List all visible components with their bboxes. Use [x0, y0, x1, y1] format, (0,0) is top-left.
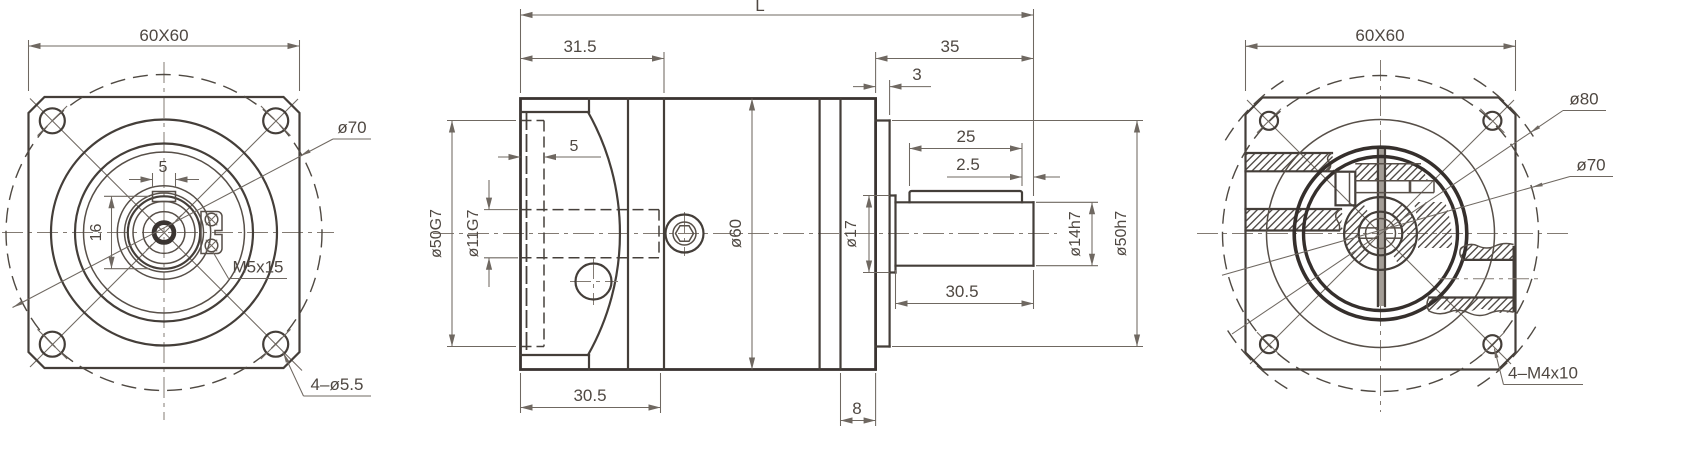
svg-text:ø14h7: ø14h7 — [1067, 211, 1084, 256]
svg-text:M5x15: M5x15 — [232, 258, 283, 277]
svg-text:L: L — [755, 0, 764, 15]
svg-text:35: 35 — [941, 37, 960, 56]
svg-text:2.5: 2.5 — [956, 155, 980, 174]
svg-text:30.5: 30.5 — [945, 282, 978, 301]
svg-text:3: 3 — [912, 65, 921, 84]
svg-text:4–M4x10: 4–M4x10 — [1508, 364, 1578, 383]
svg-text:60X60: 60X60 — [1355, 26, 1404, 45]
svg-text:ø70: ø70 — [337, 118, 366, 137]
svg-text:ø11G7: ø11G7 — [465, 210, 482, 258]
svg-text:ø17: ø17 — [843, 220, 860, 248]
svg-text:16: 16 — [88, 224, 105, 242]
svg-text:ø50G7: ø50G7 — [428, 209, 445, 258]
svg-text:ø70: ø70 — [1576, 156, 1605, 175]
svg-text:5: 5 — [159, 159, 168, 176]
svg-text:ø50h7: ø50h7 — [1113, 211, 1130, 256]
svg-text:5: 5 — [570, 138, 579, 155]
svg-text:4–ø5.5: 4–ø5.5 — [311, 375, 364, 394]
svg-text:ø80: ø80 — [1569, 90, 1598, 109]
svg-text:8: 8 — [852, 399, 861, 418]
svg-text:25: 25 — [957, 127, 976, 146]
svg-text:60X60: 60X60 — [139, 26, 188, 45]
svg-text:31.5: 31.5 — [563, 37, 596, 56]
svg-text:30.5: 30.5 — [573, 386, 606, 405]
svg-text:ø60: ø60 — [726, 219, 745, 248]
